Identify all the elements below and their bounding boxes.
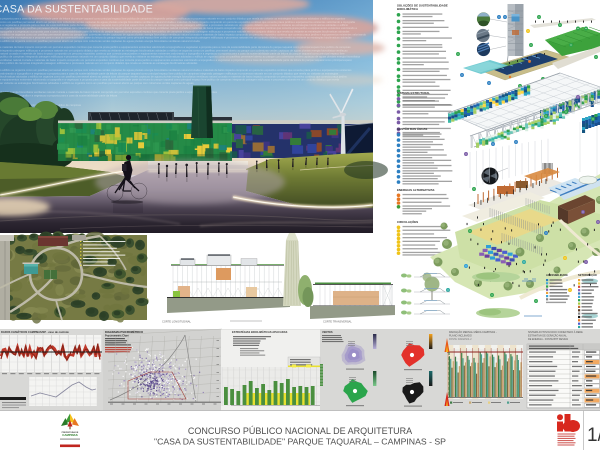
svg-text:"CASA DA SUSTENTABILIDADE" PAR: "CASA DA SUSTENTABILIDADE" PARQUE TAQUAR… (154, 437, 446, 447)
svg-text:FONTE: RADIASOL 2: FONTE: RADIASOL 2 (449, 338, 472, 341)
svg-text:GESTÃO DAS ÁGUAS: GESTÃO DAS ÁGUAS (397, 126, 427, 131)
svg-text:ao visitante as estrategias bi: ao visitante as estrategias bioclimatica… (0, 81, 194, 85)
svg-text:livre publico de campinas inte: livre publico de campinas integrando pai… (0, 61, 198, 65)
svg-text:PLANO INCLINADO: PLANO INCLINADO (449, 335, 472, 338)
svg-text:ENERGIAS ALTERNATIVAS: ENERGIAS ALTERNATIVAS (397, 188, 435, 192)
svg-text:CORTE TRANSVERSAL: CORTE TRANSVERSAL (323, 320, 352, 324)
svg-text:o edificio se organiza como um: o edificio se organiza como um pavilhao … (0, 39, 200, 43)
svg-text:CAMPINAS: CAMPINAS (62, 433, 77, 437)
svg-text:CASA DA SUSTENTABILIDADE: CASA DA SUSTENTABILIDADE (0, 4, 153, 16)
svg-text:CONCURSO PÚBLICO NACIONAL DE A: CONCURSO PÚBLICO NACIONAL DE ARQUITETURA (188, 426, 412, 436)
svg-text:BIOCLIMÁTICA: BIOCLIMÁTICA (397, 6, 419, 11)
svg-text:ACESSIBILIDADE: ACESSIBILIDADE (546, 273, 568, 277)
svg-text:SISTEMA ESTRUTURAL: SISTEMA ESTRUTURAL (397, 91, 430, 95)
svg-text:DE ENERGIA - FONTE BHT DESIG: DE ENERGIA - FONTE BHT DESIGN (528, 338, 568, 341)
svg-text:CORTE LONGITUDINAL: CORTE LONGITUDINAL (162, 320, 191, 324)
svg-text:CIRCULAÇÕES: CIRCULAÇÕES (397, 219, 418, 224)
svg-text:VENTOS: VENTOS (322, 330, 333, 334)
svg-text:1/4: 1/4 (587, 425, 600, 446)
